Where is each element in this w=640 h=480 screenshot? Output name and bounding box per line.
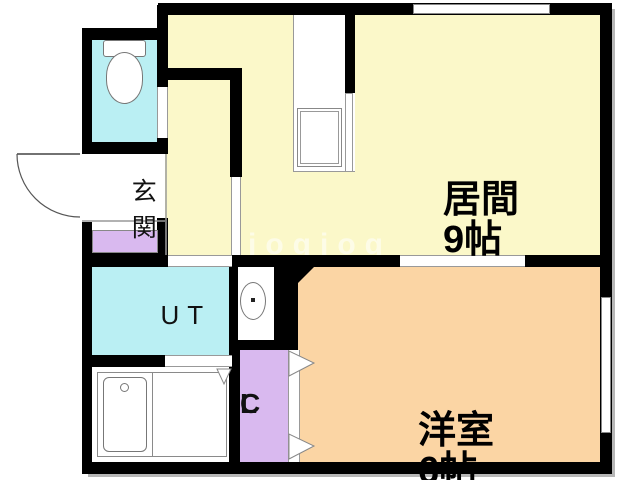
label-living-room: 居間 9帖 bbox=[443, 100, 485, 260]
western-room-name: 洋室 bbox=[418, 411, 494, 451]
floor-plan: jogjog bbox=[0, 0, 640, 480]
plan-detail-layer bbox=[0, 0, 640, 480]
living-room-name: 居間 bbox=[443, 180, 519, 220]
bath-fold-door-icon bbox=[217, 369, 231, 384]
label-western-room: 洋室 6帖 bbox=[418, 331, 460, 480]
entry-door-swing-arc-icon bbox=[17, 154, 80, 217]
closet-fold-door-icon bbox=[289, 434, 314, 459]
closet-fold-door-icon bbox=[289, 351, 314, 376]
western-room-corner-bevel bbox=[298, 267, 314, 283]
western-room-size: 6帖 bbox=[418, 451, 477, 480]
living-room-size: 9帖 bbox=[443, 220, 502, 260]
closet-letter-l: L bbox=[240, 392, 257, 416]
